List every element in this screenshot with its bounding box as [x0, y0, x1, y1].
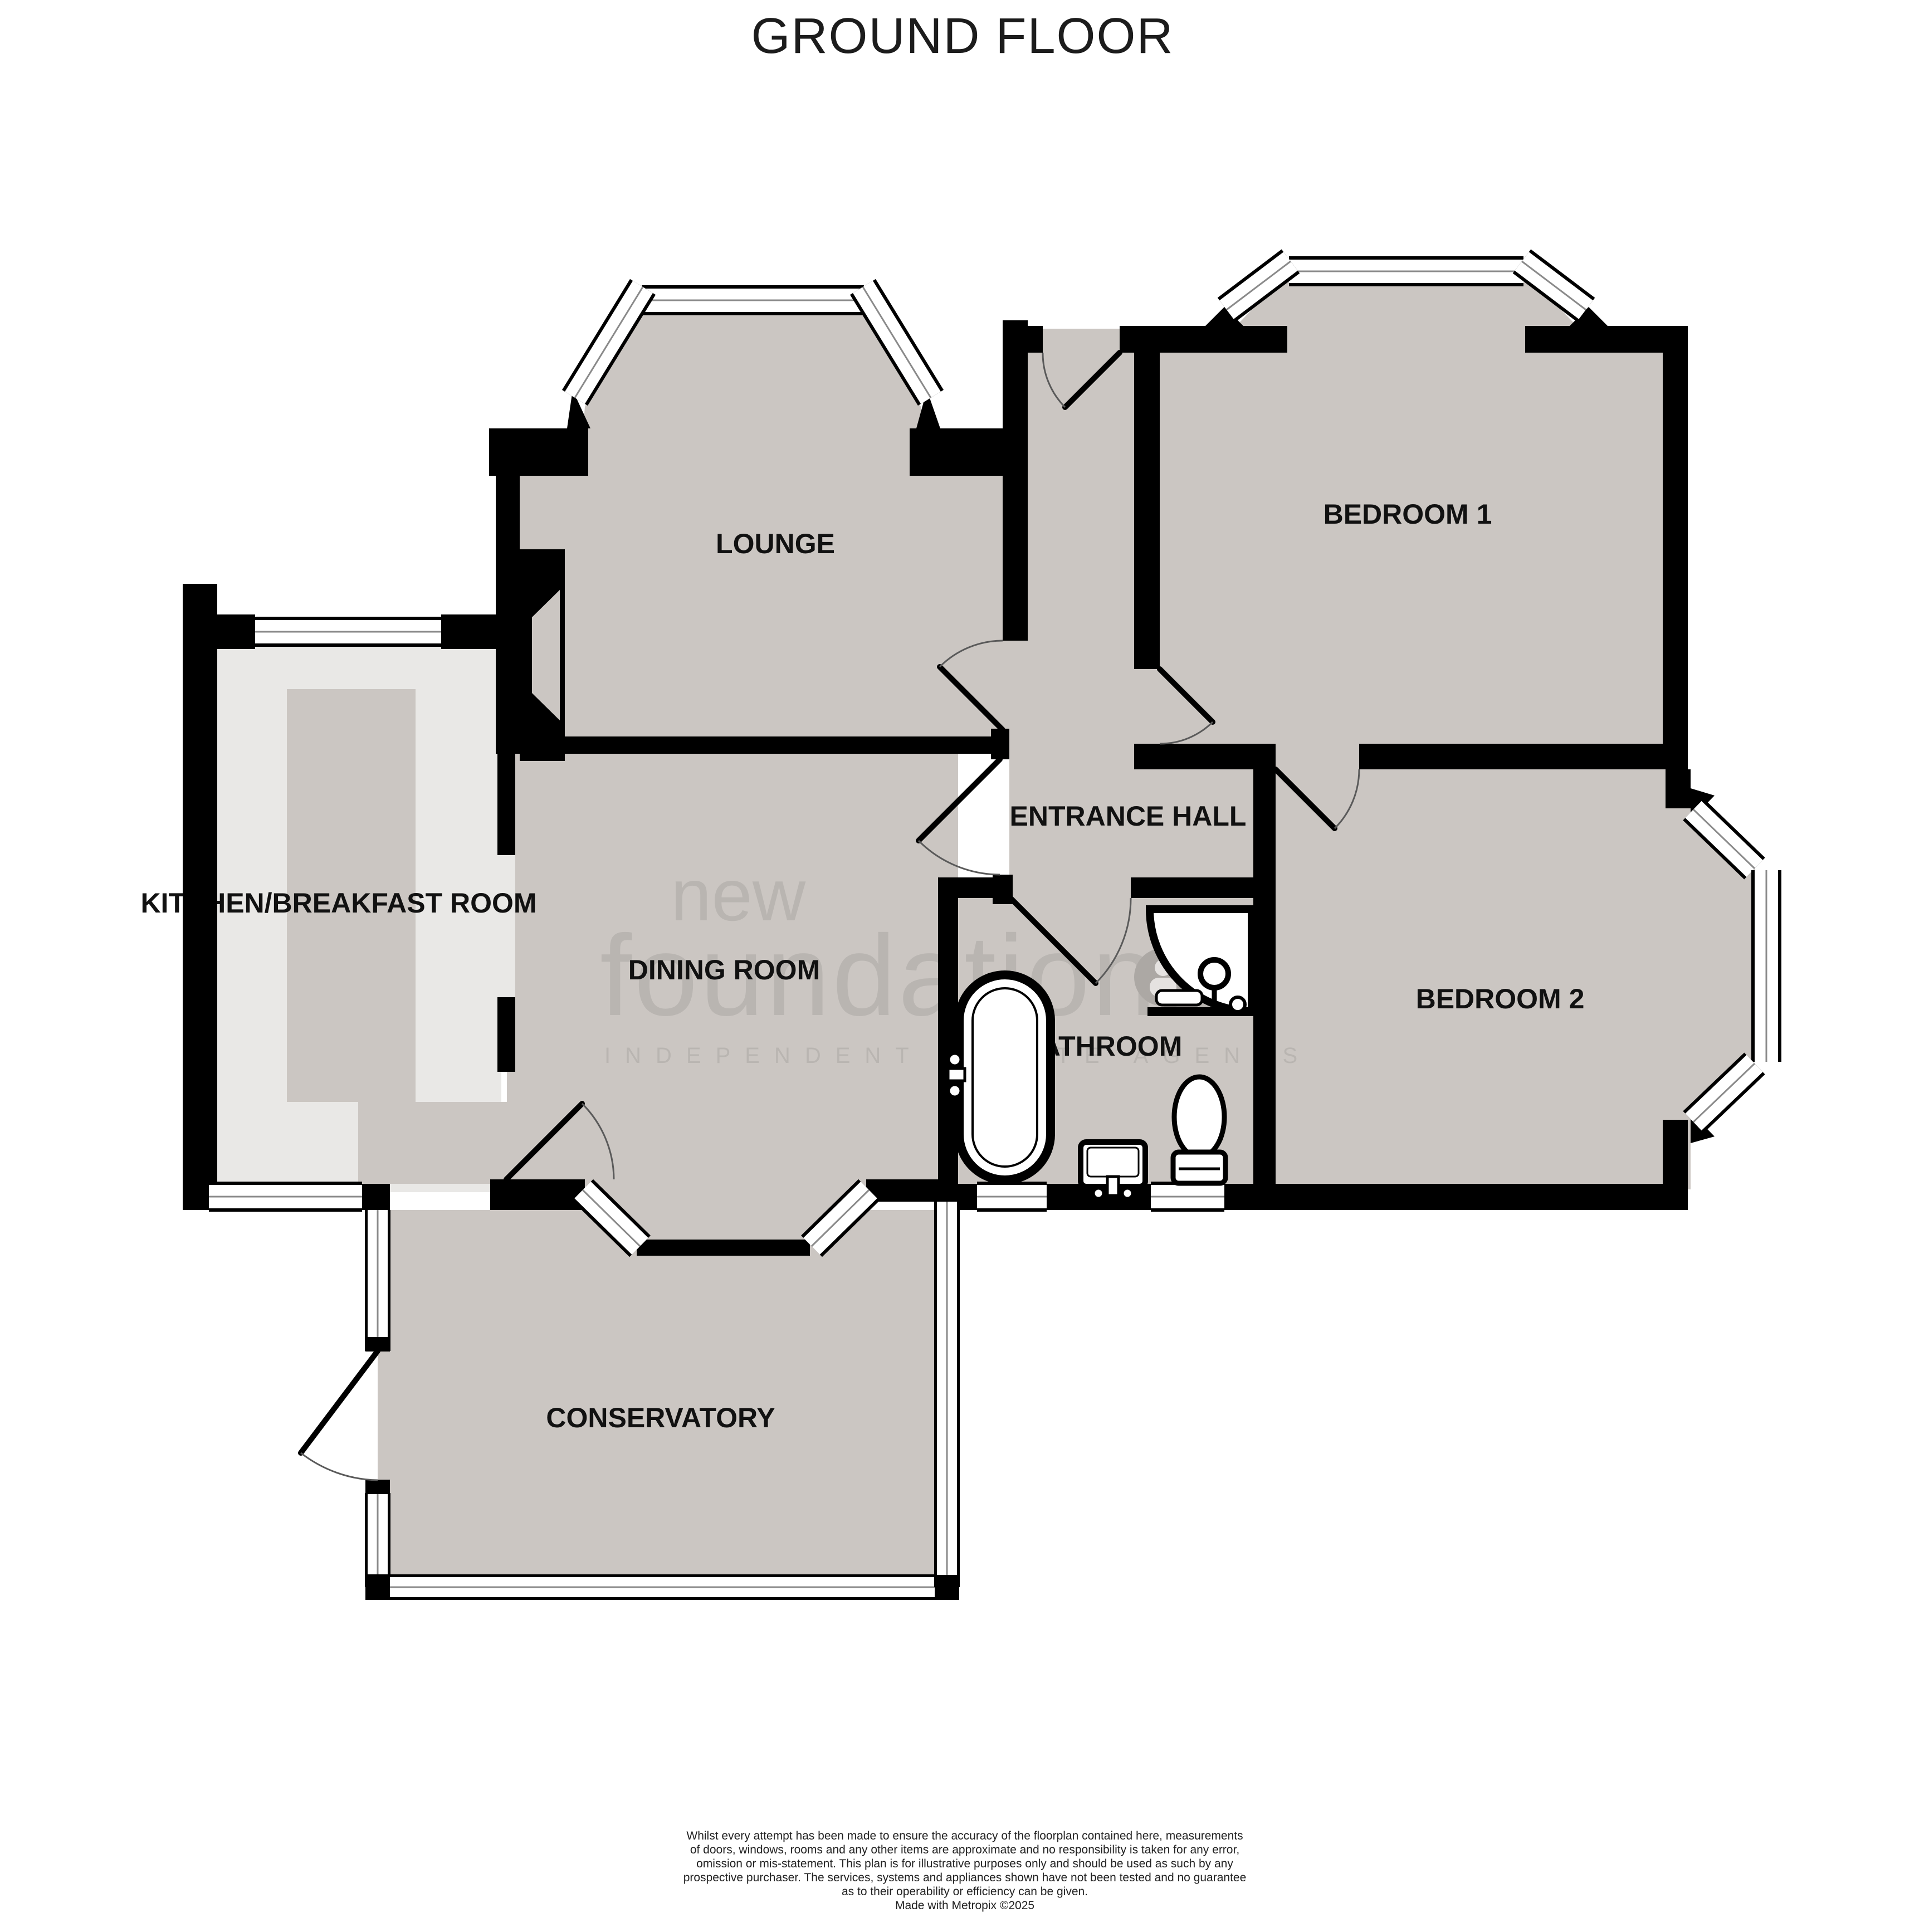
toilet-icon	[1173, 1077, 1225, 1183]
wall-dining-bottom-right	[866, 1179, 940, 1202]
conservatory-corner-left	[365, 1575, 390, 1599]
wall-kitchen-dining-lower	[497, 997, 515, 1072]
wall-bedroom1-right	[1663, 326, 1688, 769]
room-conservatory	[378, 1210, 947, 1587]
disclaimer-line: omission or mis-statement. This plan is …	[696, 1857, 1233, 1870]
wall-kitchen-left	[183, 584, 217, 1210]
disclaimer-line: prospective purchaser. The services, sys…	[683, 1871, 1247, 1884]
room-bedroom1	[1147, 345, 1671, 769]
wall-bedroom2-right-upper	[1666, 769, 1691, 808]
wall-hall-lounge	[1003, 476, 1028, 641]
label-conservatory: CONSERVATORY	[546, 1402, 775, 1433]
chimney-breast-face	[560, 585, 565, 725]
wall-dining-bay-bottom	[637, 1240, 810, 1256]
label-entrance-hall: ENTRANCE HALL	[1010, 801, 1247, 832]
wall-lounge-top-left	[489, 428, 588, 476]
wall-bed1-bed2-right	[1359, 744, 1688, 769]
wall-kitchen-dining-upper	[497, 754, 515, 855]
wall-kitchen-top-right	[441, 614, 497, 649]
kitchen-hatch-opening	[497, 855, 515, 997]
wall-lounge-left	[496, 428, 520, 754]
wall-front-left	[1003, 326, 1043, 353]
label-dining-room: DINING ROOM	[628, 954, 820, 985]
disclaimer-line: as to their operability or efficiency ca…	[842, 1885, 1088, 1898]
wall-stub-kitchen-bottom	[490, 1179, 515, 1210]
wall-bedroom2-bottom	[1276, 1184, 1688, 1210]
wall-bathroom-bedroom2	[1253, 769, 1276, 1184]
page-title: GROUND FLOOR	[751, 8, 1174, 64]
label-lounge: LOUNGE	[716, 528, 835, 559]
room-lounge	[512, 462, 1014, 747]
floorplan-page: new foundations INDEPENDENT ESTATE AGENT…	[0, 0, 1929, 1932]
kitchen-floor-inset-2	[358, 1102, 515, 1184]
front-door-threshold	[1035, 329, 1120, 354]
disclaimer: Whilst every attempt has been made to en…	[683, 1829, 1247, 1912]
floorplan-svg: new foundations INDEPENDENT ESTATE AGENT…	[0, 0, 1929, 1932]
wall-hall-bedroom1	[1134, 326, 1160, 669]
wall-bathroom-top-left	[938, 877, 1010, 898]
wall-bedroom2-right-lower	[1663, 1120, 1688, 1184]
wall-kitchen-top-left	[183, 614, 255, 649]
disclaimer-line: of doors, windows, rooms and any other i…	[690, 1843, 1239, 1856]
conservatory-door-jamb-bottom	[365, 1480, 390, 1494]
label-bedroom1: BEDROOM 1	[1324, 499, 1492, 530]
wall-bed1-bed2-left	[1134, 744, 1276, 769]
wall-dining-bottom-left	[515, 1179, 585, 1210]
door-conservatory	[301, 1351, 378, 1480]
conservatory-corner-right	[935, 1575, 959, 1599]
wall-lounge-dining	[496, 736, 1007, 754]
label-bedroom2: BEDROOM 2	[1416, 983, 1585, 1014]
bathtub-icon	[948, 975, 1051, 1180]
credit-line: Made with Metropix ©2025	[895, 1899, 1034, 1912]
corner-shower-icon	[1147, 909, 1255, 1016]
room-entrance-hall	[1009, 334, 1149, 774]
disclaimer-line: Whilst every attempt has been made to en…	[686, 1829, 1243, 1842]
